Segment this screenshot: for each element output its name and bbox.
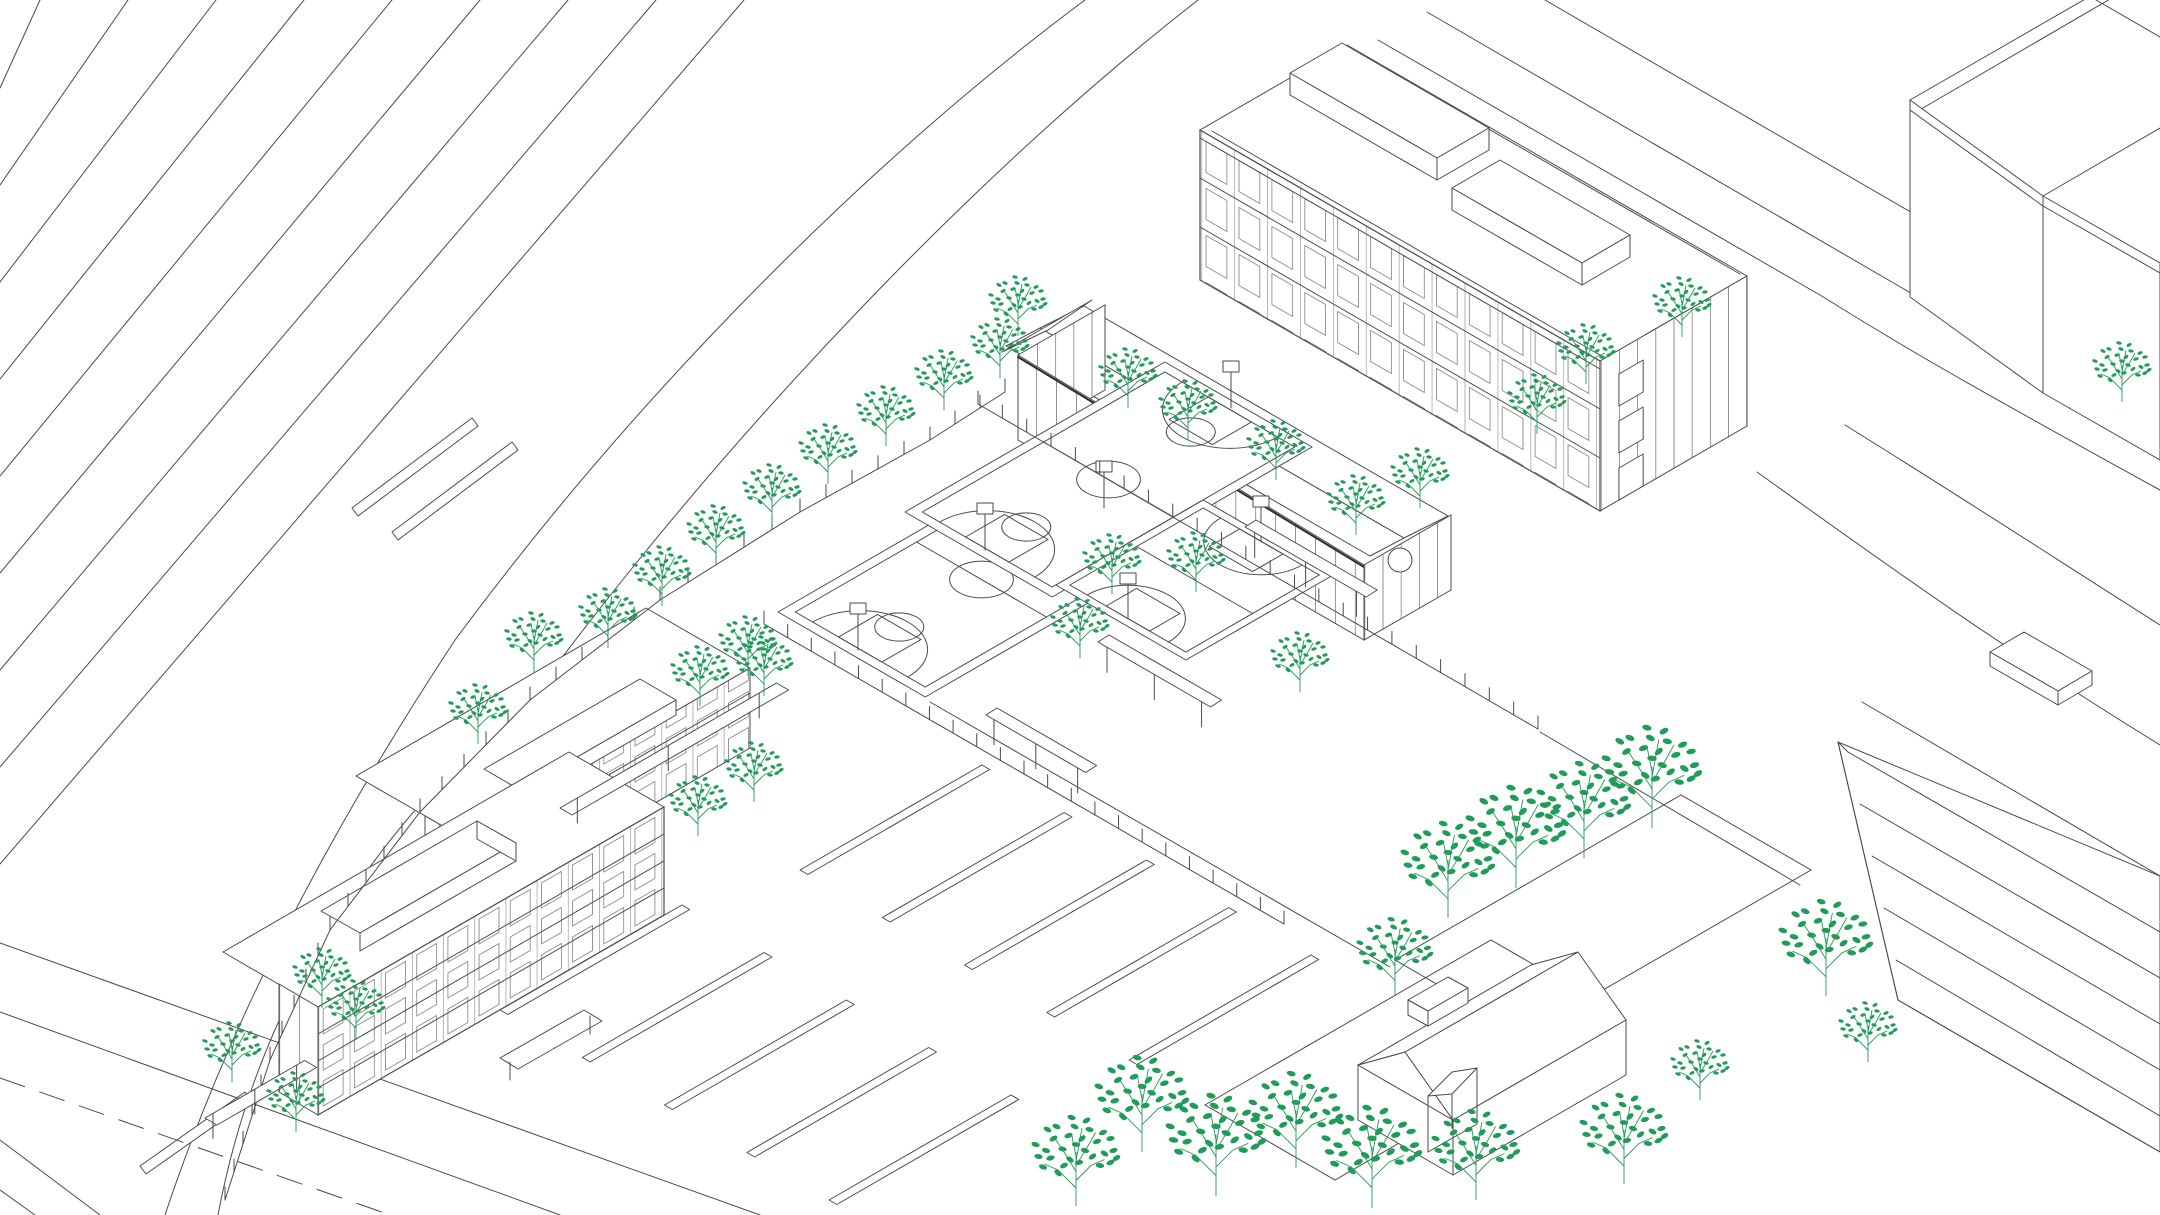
parking-bar xyxy=(1129,955,1319,1065)
parking-bar xyxy=(965,860,1155,970)
building-northeast-box xyxy=(1910,0,2160,460)
railway-track-line xyxy=(0,0,304,379)
road-edge xyxy=(930,702,1390,967)
tree xyxy=(1579,1092,1670,1184)
porthole-window xyxy=(1388,548,1412,572)
entrance-canopy xyxy=(500,1010,602,1080)
fence xyxy=(764,611,1284,924)
tree xyxy=(856,385,916,446)
railway-track-line xyxy=(0,0,392,476)
parking-bar xyxy=(800,765,990,875)
building-east-banded xyxy=(1838,632,2160,1152)
tree xyxy=(1670,1039,1730,1100)
railway-track-line xyxy=(0,0,128,185)
parking-bar xyxy=(582,953,772,1063)
tree xyxy=(1601,724,1704,828)
end-windows xyxy=(1619,360,1643,500)
railway-track-line xyxy=(0,0,216,282)
front-slab-end xyxy=(279,984,318,1115)
tree xyxy=(724,741,784,802)
tree xyxy=(914,349,974,410)
parking-bar xyxy=(829,1095,1019,1205)
tree xyxy=(686,504,746,565)
tree xyxy=(1838,1001,1898,1062)
parking-bank xyxy=(800,765,1319,1065)
tree xyxy=(742,463,802,524)
site-plan-canvas xyxy=(0,0,2160,1215)
railway-track-line xyxy=(0,1190,35,1215)
tree xyxy=(632,545,692,606)
road-edge xyxy=(1845,425,2160,625)
tree xyxy=(1270,631,1330,692)
railway-track-line xyxy=(0,1140,100,1215)
parking-bar xyxy=(747,1048,937,1158)
tree xyxy=(668,775,728,836)
parking-bar xyxy=(1047,908,1237,1018)
road-edge xyxy=(1757,472,2160,745)
house-gabled xyxy=(1358,952,1626,1175)
building-school-west xyxy=(223,608,750,1115)
tree xyxy=(988,275,1048,336)
tree xyxy=(1778,898,1875,996)
tree xyxy=(1356,916,1434,996)
railway-track-line xyxy=(0,0,656,767)
site-plan-drawing xyxy=(0,0,2160,1215)
shelter-roof xyxy=(986,708,1097,773)
railway-track-line xyxy=(0,0,568,670)
platform-strip xyxy=(392,442,518,540)
shelter-bench xyxy=(986,708,1097,793)
railway-track-line xyxy=(2096,0,2160,37)
tree xyxy=(202,1021,262,1082)
tree xyxy=(1031,1114,1122,1206)
tree xyxy=(1536,760,1633,858)
tree xyxy=(798,423,858,484)
railway-track-line xyxy=(0,0,40,88)
tree xyxy=(1400,820,1497,918)
parking-bar xyxy=(665,1000,855,1110)
tree xyxy=(1165,1092,1268,1196)
parking-bar xyxy=(882,813,1072,923)
